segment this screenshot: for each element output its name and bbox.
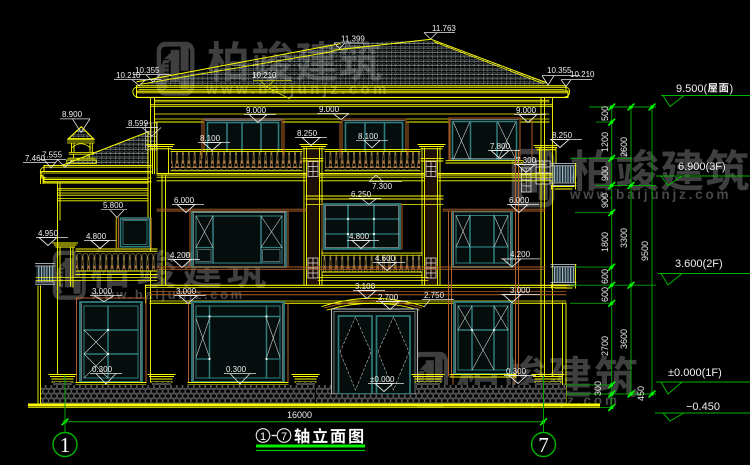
svg-text:1: 1 (260, 431, 266, 443)
svg-text:3.000: 3.000 (510, 286, 531, 295)
svg-text:10.210: 10.210 (252, 71, 277, 80)
svg-text:www.baijunjz.com: www.baijunjz.com (569, 187, 731, 202)
svg-text:1200: 1200 (600, 132, 610, 152)
svg-text:4.950: 4.950 (38, 229, 59, 238)
svg-text:9.000: 9.000 (246, 106, 267, 115)
svg-text:10.355: 10.355 (135, 66, 160, 75)
svg-text:3600: 3600 (619, 329, 629, 349)
svg-text:600: 600 (600, 269, 610, 284)
svg-text:11.399: 11.399 (341, 35, 365, 44)
svg-text:7.300: 7.300 (372, 182, 393, 191)
svg-text:2600: 2600 (619, 137, 629, 157)
svg-text:7.555: 7.555 (42, 151, 63, 160)
svg-text:8.100: 8.100 (358, 132, 379, 141)
svg-text:0.300: 0.300 (506, 367, 527, 376)
svg-text:6.900(3F): 6.900(3F) (678, 161, 726, 173)
svg-text:7.460: 7.460 (25, 154, 46, 163)
svg-text:16000: 16000 (287, 410, 312, 420)
svg-text:10.355: 10.355 (547, 66, 572, 75)
svg-text:4.200: 4.200 (170, 251, 191, 260)
svg-text:1800: 1800 (600, 232, 610, 252)
svg-text:1: 1 (60, 433, 71, 457)
svg-text:−0.450: −0.450 (686, 401, 720, 413)
svg-text:6.000: 6.000 (509, 196, 530, 205)
svg-text:900: 900 (600, 193, 610, 208)
svg-text:4.600: 4.600 (375, 254, 396, 263)
svg-text:8.250: 8.250 (552, 131, 573, 140)
svg-text:5.800: 5.800 (103, 201, 124, 210)
svg-text:6.000: 6.000 (174, 196, 195, 205)
svg-text:7.300: 7.300 (516, 156, 537, 165)
svg-text:8.599: 8.599 (128, 119, 149, 128)
svg-text:9500: 9500 (640, 241, 650, 261)
svg-text:±0.000(1F): ±0.000(1F) (668, 367, 722, 379)
svg-text:4.200: 4.200 (510, 250, 531, 259)
svg-text:600: 600 (600, 287, 610, 302)
svg-text:9.000: 9.000 (319, 105, 340, 114)
svg-text:2.700: 2.700 (378, 293, 399, 302)
svg-text:500: 500 (600, 106, 610, 121)
svg-text:7: 7 (538, 433, 549, 457)
svg-text:7: 7 (281, 431, 287, 443)
svg-text:3.600(2F): 3.600(2F) (675, 258, 723, 270)
svg-text:8.900: 8.900 (62, 110, 83, 119)
svg-text:3300: 3300 (619, 228, 629, 248)
svg-text:8.250: 8.250 (297, 129, 318, 138)
svg-text:2.750: 2.750 (424, 291, 445, 300)
svg-text:3.000: 3.000 (92, 287, 113, 296)
svg-text:4.800: 4.800 (86, 232, 107, 241)
svg-text:9.500(: 9.500( (676, 83, 708, 95)
svg-text:±0.000: ±0.000 (370, 375, 395, 384)
svg-text:450: 450 (636, 386, 646, 401)
svg-text:9.000: 9.000 (516, 106, 537, 115)
svg-text:2700: 2700 (600, 336, 610, 356)
svg-text:7.800: 7.800 (490, 142, 511, 151)
svg-text:3.100: 3.100 (355, 282, 376, 291)
svg-text:10.210: 10.210 (570, 70, 595, 79)
svg-text:300: 300 (593, 381, 603, 396)
svg-text:3.000: 3.000 (176, 287, 197, 296)
svg-text:11.763: 11.763 (432, 24, 456, 33)
svg-text:0.300: 0.300 (226, 365, 247, 374)
svg-text:6.250: 6.250 (351, 190, 372, 199)
svg-text:900: 900 (600, 166, 610, 181)
svg-text:4.800: 4.800 (349, 232, 370, 241)
svg-text:8.100: 8.100 (200, 134, 221, 143)
svg-text:): ) (730, 83, 734, 95)
svg-text:0.300: 0.300 (92, 365, 113, 374)
